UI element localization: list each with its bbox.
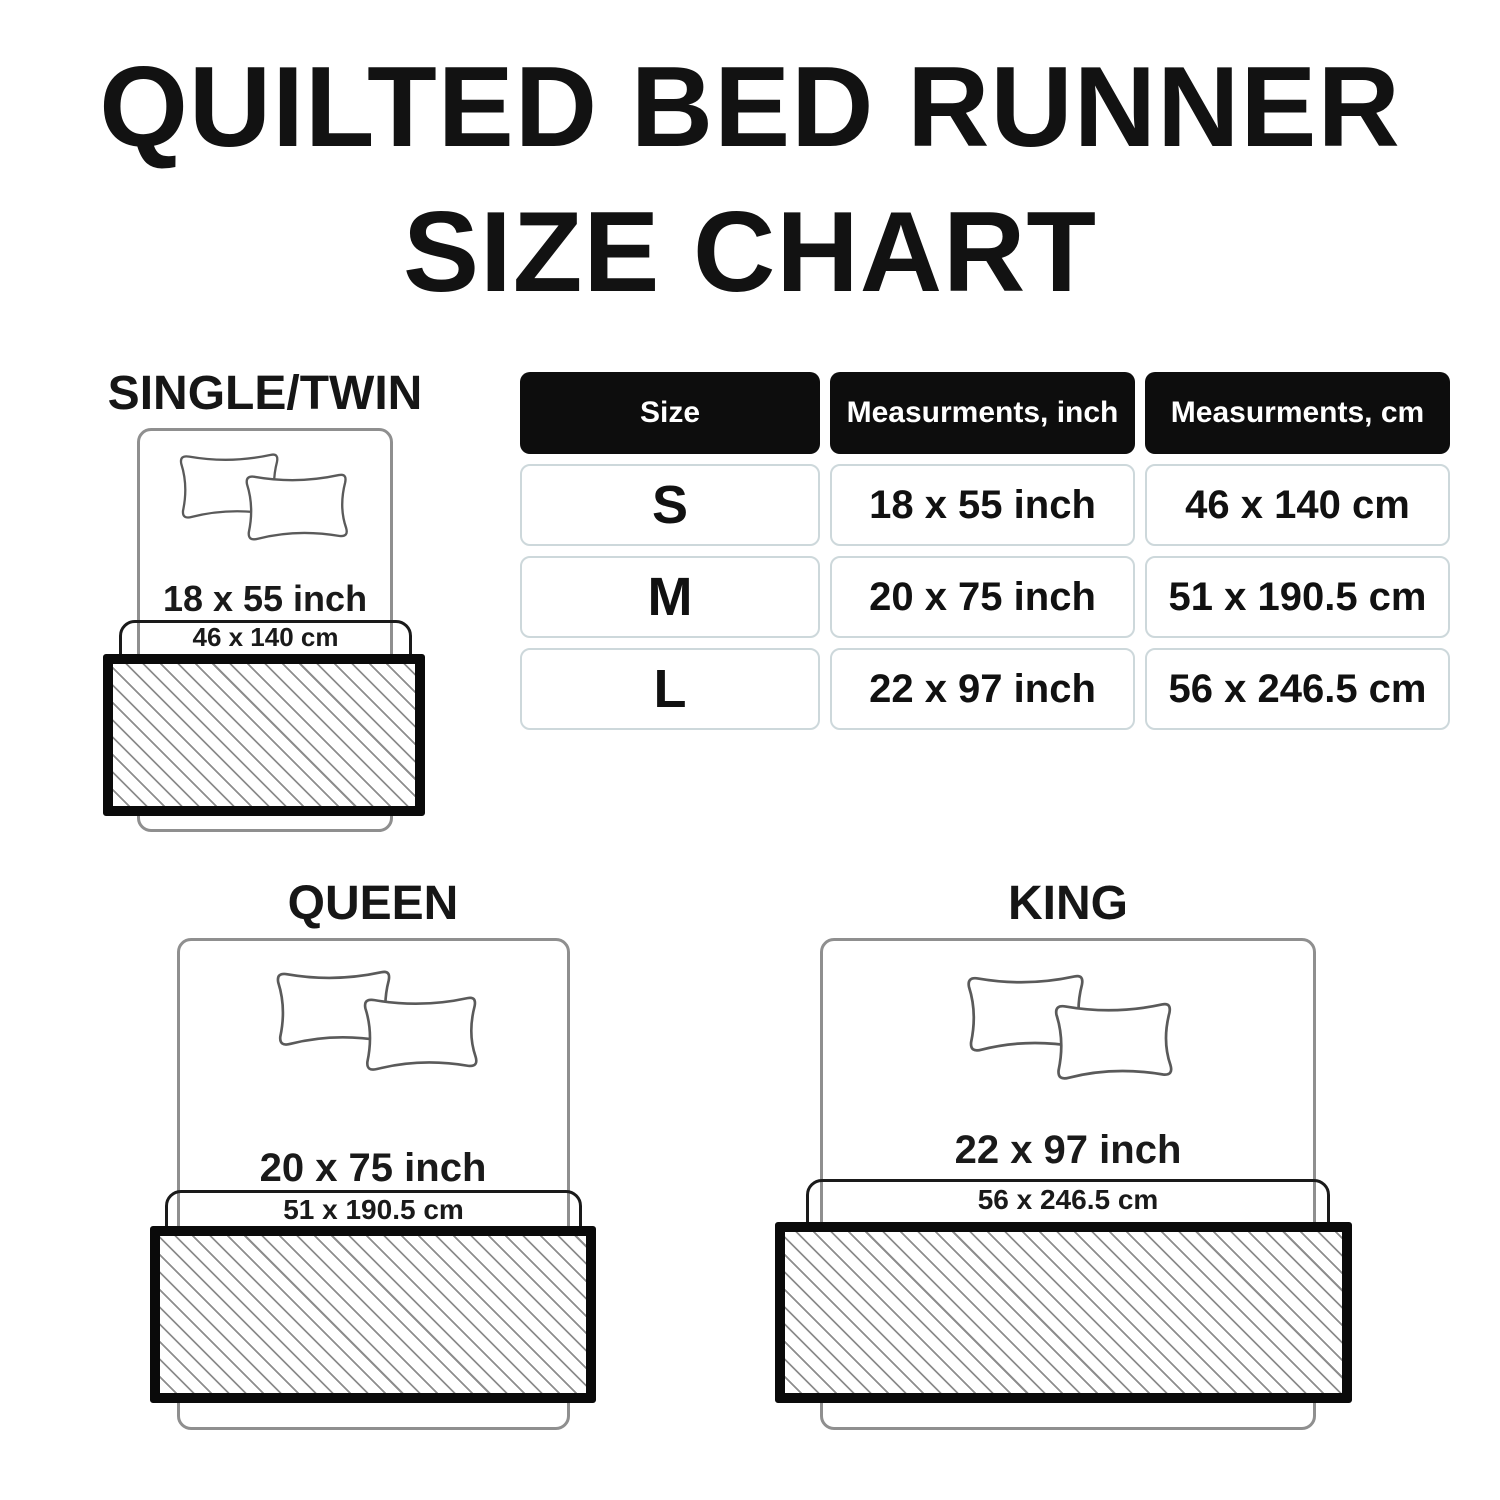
table-cell-cm-l: 56 x 246.5 cm [1145, 648, 1450, 730]
table-cell-inch-l: 22 x 97 inch [830, 648, 1135, 730]
single-twin-inch-dimension: 18 x 55 inch [105, 578, 425, 620]
pillow-icon [1046, 994, 1182, 1086]
table-cell-inch-s: 18 x 55 inch [830, 464, 1135, 546]
page-title-line2: SIZE CHART [0, 181, 1500, 326]
queen-inch-dimension: 20 x 75 inch [193, 1146, 553, 1191]
queen-runner [150, 1226, 596, 1403]
size-chart-infographic: QUILTED BED RUNNER SIZE CHART Size Measu… [0, 0, 1500, 1500]
table-header-cm: Measurments, cm [1145, 372, 1450, 454]
table-header-size: Size [520, 372, 820, 454]
table-header-inch: Measurments, inch [830, 372, 1135, 454]
table-cell-size-m: M [520, 556, 820, 638]
size-table: Size Measurments, inch Measurments, cm S… [520, 372, 1450, 730]
table-cell-inch-m: 20 x 75 inch [830, 556, 1135, 638]
table-cell-cm-s: 46 x 140 cm [1145, 464, 1450, 546]
page-title-line1: QUILTED BED RUNNER [0, 36, 1500, 181]
king-label: KING [918, 876, 1218, 931]
table-cell-size-s: S [520, 464, 820, 546]
king-inch-dimension: 22 x 97 inch [888, 1128, 1248, 1173]
table-cell-cm-m: 51 x 190.5 cm [1145, 556, 1450, 638]
pillow-icon [353, 988, 489, 1077]
page-title: QUILTED BED RUNNER SIZE CHART [0, 36, 1500, 326]
pillow-icon [242, 466, 352, 546]
queen-cm-dimension: 51 x 190.5 cm [165, 1194, 582, 1226]
single-twin-runner [103, 654, 425, 816]
single-twin-cm-dimension: 46 x 140 cm [119, 622, 412, 653]
single-twin-label: SINGLE/TWIN [85, 366, 445, 421]
table-cell-size-l: L [520, 648, 820, 730]
queen-label: QUEEN [223, 876, 523, 931]
king-cm-dimension: 56 x 246.5 cm [806, 1184, 1330, 1216]
king-runner [775, 1222, 1352, 1403]
